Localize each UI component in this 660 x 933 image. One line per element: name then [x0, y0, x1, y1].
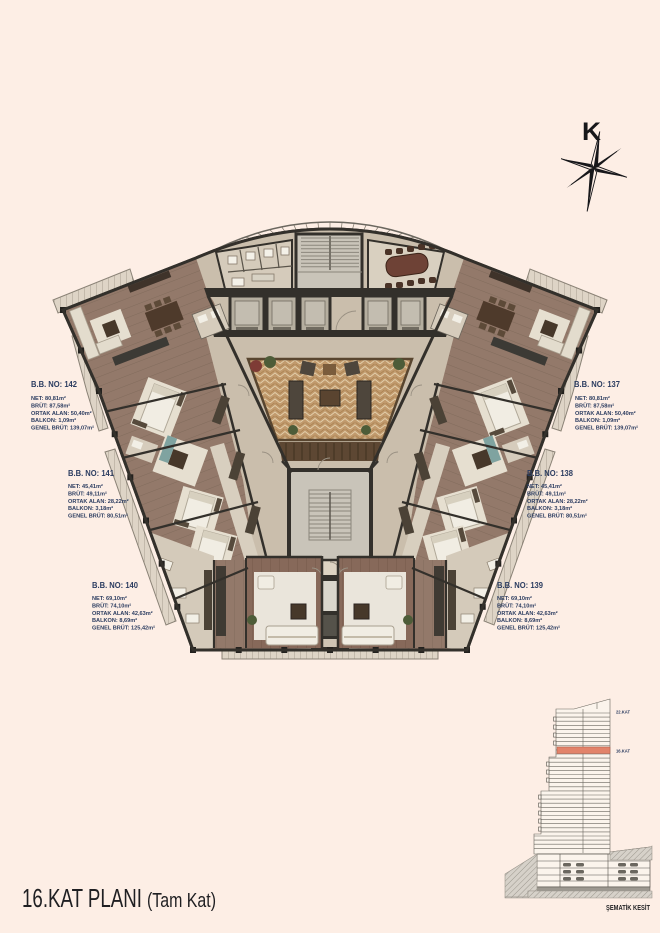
- svg-text:BALKON: 8,69m²: BALKON: 8,69m²: [92, 617, 137, 624]
- svg-text:B.B. NO: 141: B.B. NO: 141: [68, 469, 115, 478]
- svg-text:BALKON: 1,09m²: BALKON: 1,09m²: [31, 417, 76, 424]
- svg-text:16.KAT PLANI: 16.KAT PLANI: [22, 883, 142, 913]
- svg-text:NET: 69,10m²: NET: 69,10m²: [497, 595, 532, 602]
- svg-text:GENEL BRÜT: 139,07m²: GENEL BRÜT: 139,07m²: [575, 425, 638, 432]
- svg-text:16.KAT: 16.KAT: [616, 749, 630, 754]
- svg-text:ORTAK ALAN: 50,40m²: ORTAK ALAN: 50,40m²: [575, 410, 636, 417]
- svg-text:B.B. NO: 140: B.B. NO: 140: [92, 581, 139, 590]
- svg-text:22.KAT: 22.KAT: [616, 710, 630, 715]
- svg-text:(Tam Kat): (Tam Kat): [147, 890, 216, 912]
- svg-text:BRÜT: 49,11m²: BRÜT: 49,11m²: [68, 490, 107, 497]
- svg-text:NET: 45,41m²: NET: 45,41m²: [527, 483, 562, 490]
- svg-text:ORTAK ALAN: 42,63m²: ORTAK ALAN: 42,63m²: [92, 610, 153, 617]
- svg-text:ORTAK ALAN: 28,22m²: ORTAK ALAN: 28,22m²: [68, 498, 129, 505]
- svg-text:B.B. NO: 138: B.B. NO: 138: [527, 469, 574, 478]
- svg-text:GENEL BRÜT: 139,07m²: GENEL BRÜT: 139,07m²: [31, 425, 94, 432]
- svg-text:BRÜT: 74,10m²: BRÜT: 74,10m²: [92, 602, 131, 609]
- svg-text:GENEL BRÜT: 125,42m²: GENEL BRÜT: 125,42m²: [497, 625, 560, 632]
- svg-text:BALKON: 8,69m²: BALKON: 8,69m²: [497, 617, 542, 624]
- svg-text:BALKON: 1,09m²: BALKON: 1,09m²: [575, 417, 620, 424]
- svg-text:ORTAK ALAN: 42,63m²: ORTAK ALAN: 42,63m²: [497, 610, 558, 617]
- svg-text:B.B. NO: 142: B.B. NO: 142: [31, 380, 78, 389]
- svg-text:B.B. NO: 137: B.B. NO: 137: [574, 380, 621, 389]
- svg-text:GENEL BRÜT: 80,51m²: GENEL BRÜT: 80,51m²: [527, 513, 587, 520]
- svg-text:BALKON: 3,18m²: BALKON: 3,18m²: [68, 505, 113, 512]
- svg-text:NET: 69,10m²: NET: 69,10m²: [92, 595, 127, 602]
- svg-text:NET: 45,41m²: NET: 45,41m²: [68, 483, 103, 490]
- svg-text:NET: 80,81m²: NET: 80,81m²: [575, 395, 610, 402]
- svg-text:GENEL BRÜT: 125,42m²: GENEL BRÜT: 125,42m²: [92, 625, 155, 632]
- svg-text:ORTAK ALAN: 50,40m²: ORTAK ALAN: 50,40m²: [31, 410, 92, 417]
- svg-text:GENEL BRÜT: 80,51m²: GENEL BRÜT: 80,51m²: [68, 513, 128, 520]
- svg-text:BALKON: 3,18m²: BALKON: 3,18m²: [527, 505, 572, 512]
- svg-text:B.B. NO: 139: B.B. NO: 139: [497, 581, 544, 590]
- svg-text:BRÜT: 49,11m²: BRÜT: 49,11m²: [527, 490, 566, 497]
- svg-text:ŞEMATİK KESİT: ŞEMATİK KESİT: [606, 904, 651, 912]
- svg-text:BRÜT: 74,10m²: BRÜT: 74,10m²: [497, 602, 536, 609]
- svg-text:NET: 80,81m²: NET: 80,81m²: [31, 395, 66, 402]
- svg-text:BRÜT: 87,58m²: BRÜT: 87,58m²: [31, 402, 70, 409]
- svg-text:BRÜT: 87,58m²: BRÜT: 87,58m²: [575, 402, 614, 409]
- svg-text:ORTAK ALAN: 28,22m²: ORTAK ALAN: 28,22m²: [527, 498, 588, 505]
